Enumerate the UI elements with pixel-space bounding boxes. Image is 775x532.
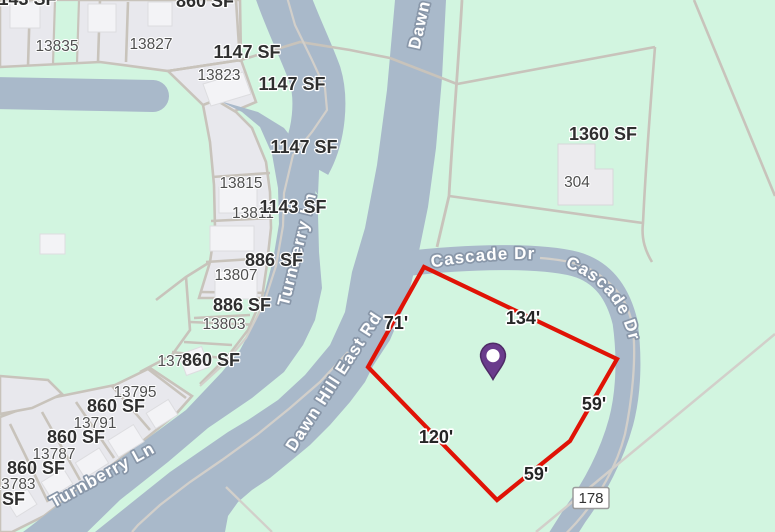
svg-text:860 SF: 860 SF <box>0 489 25 509</box>
svg-text:860 SF: 860 SF <box>7 458 65 478</box>
svg-text:59': 59' <box>524 464 548 484</box>
svg-text:1143 SF: 1143 SF <box>259 197 326 217</box>
svg-text:1360 SF: 1360 SF <box>569 124 637 144</box>
svg-text:860 SF: 860 SF <box>182 350 240 370</box>
svg-text:120': 120' <box>419 427 453 447</box>
svg-text:1143 SF: 1143 SF <box>0 0 57 9</box>
svg-text:304: 304 <box>564 174 590 191</box>
svg-text:13815: 13815 <box>219 175 262 192</box>
svg-text:1147 SF: 1147 SF <box>258 74 325 94</box>
svg-text:13823: 13823 <box>197 67 240 84</box>
svg-text:886 SF: 886 SF <box>245 250 303 270</box>
svg-text:59': 59' <box>582 394 606 414</box>
svg-text:13803: 13803 <box>202 316 245 333</box>
svg-text:1147 SF: 1147 SF <box>270 137 337 157</box>
svg-text:860 SF: 860 SF <box>47 427 105 447</box>
svg-text:71': 71' <box>384 313 408 333</box>
svg-text:13827: 13827 <box>129 36 172 53</box>
svg-text:886 SF: 886 SF <box>213 295 271 315</box>
svg-text:13835: 13835 <box>35 38 78 55</box>
svg-text:860 SF: 860 SF <box>176 0 234 11</box>
svg-text:1147 SF: 1147 SF <box>213 42 280 62</box>
svg-text:860 SF: 860 SF <box>87 396 145 416</box>
svg-text:178: 178 <box>578 490 603 507</box>
svg-text:134': 134' <box>506 308 540 328</box>
